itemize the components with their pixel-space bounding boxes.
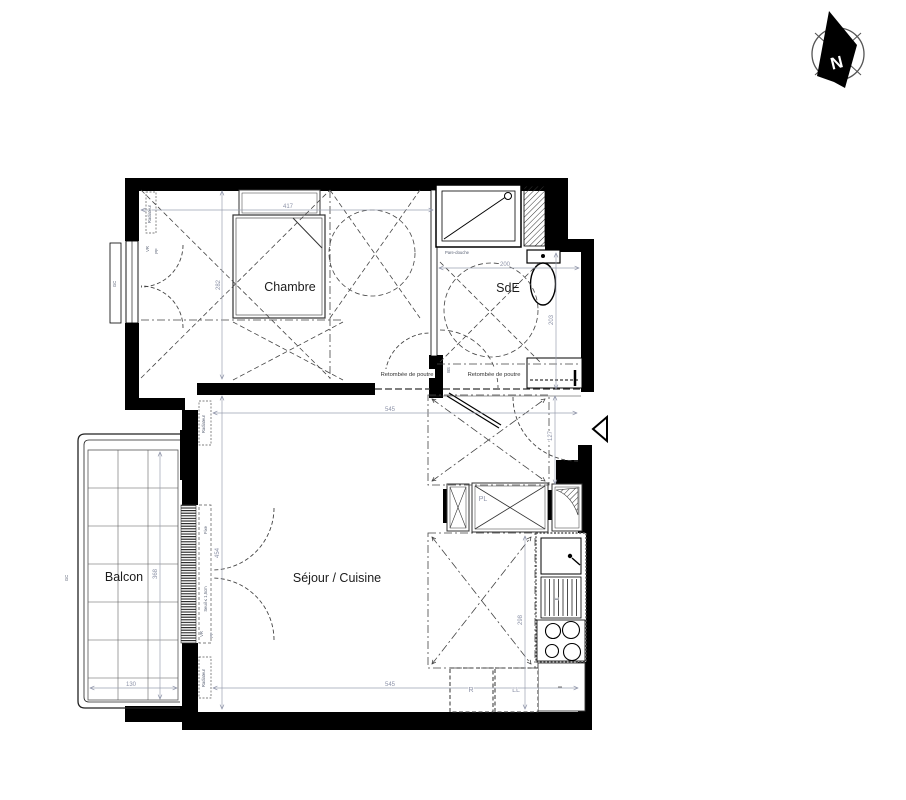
kitchen-unit <box>536 533 586 711</box>
duct-hatch <box>524 186 545 246</box>
cooktop <box>537 620 585 661</box>
gc-label: GC <box>64 575 69 581</box>
sink-basin <box>541 538 581 574</box>
dim-sde-height: 203 <box>549 314 555 325</box>
dim-balcon-width: 130 <box>126 682 137 688</box>
dim-chambre-height: 282 <box>216 279 222 290</box>
toilet <box>527 250 560 305</box>
dim-sde-width: 200 <box>500 262 511 268</box>
sink-drainer <box>541 577 581 618</box>
dim-sejour-width-bottom: 545 <box>385 682 396 688</box>
room-label-balcon: Balcon <box>105 570 143 584</box>
bed <box>233 190 325 318</box>
pf-label: PF <box>154 248 159 254</box>
room-label-chambre: Chambre <box>264 280 315 294</box>
floor-plan-page: N <box>0 0 906 800</box>
dim-kitchen-height: 298 <box>518 614 524 625</box>
balcony-door-sill <box>181 505 211 643</box>
room-labels: Chambre SdE Séjour / Cuisine Balcon <box>105 280 520 585</box>
entrance-arrow-icon <box>593 417 607 441</box>
walls <box>125 178 594 730</box>
north-compass-icon: N <box>812 11 864 88</box>
fridge-label: R <box>468 687 473 694</box>
pare-douche-label: Pare-douche <box>445 250 470 255</box>
sink-label: E <box>554 597 559 600</box>
beam-label: Retombée de poutre <box>468 372 521 378</box>
bs-label: BS <box>446 367 451 373</box>
door-leaf <box>447 393 501 428</box>
washbasin <box>527 358 582 388</box>
shower <box>436 185 521 247</box>
radiator-label: Radiateur <box>201 414 206 433</box>
vr-label: VR <box>145 246 150 252</box>
dim-sejour-width-top: 545 <box>385 407 396 413</box>
room-label-sde: SdE <box>496 281 520 295</box>
seuil-label: Seuil ≤ 1,5cm <box>203 586 208 612</box>
room-label-sejour: Séjour / Cuisine <box>293 571 381 585</box>
dim-hall-height: 127 <box>548 430 554 441</box>
fixe-label: Fixe <box>203 525 208 534</box>
gc-label: GC <box>112 281 117 287</box>
dim-chambre-width: 417 <box>283 204 294 210</box>
vr-label: VR <box>199 631 204 637</box>
closet-row <box>443 483 582 532</box>
beam-label: Retombée de poutre <box>381 372 434 378</box>
radiator-label: Radiateur <box>147 204 152 223</box>
radiator-label: Radiateur <box>201 668 206 687</box>
closet-label: PL <box>479 496 488 503</box>
dim-balcon-height: 368 <box>153 568 159 579</box>
dim-sejour-height: 454 <box>215 547 221 558</box>
radiators <box>146 192 211 698</box>
floor-plan-drawing: N <box>0 0 906 800</box>
pf-label: PF <box>209 632 214 638</box>
washer-label: LL <box>512 687 520 694</box>
